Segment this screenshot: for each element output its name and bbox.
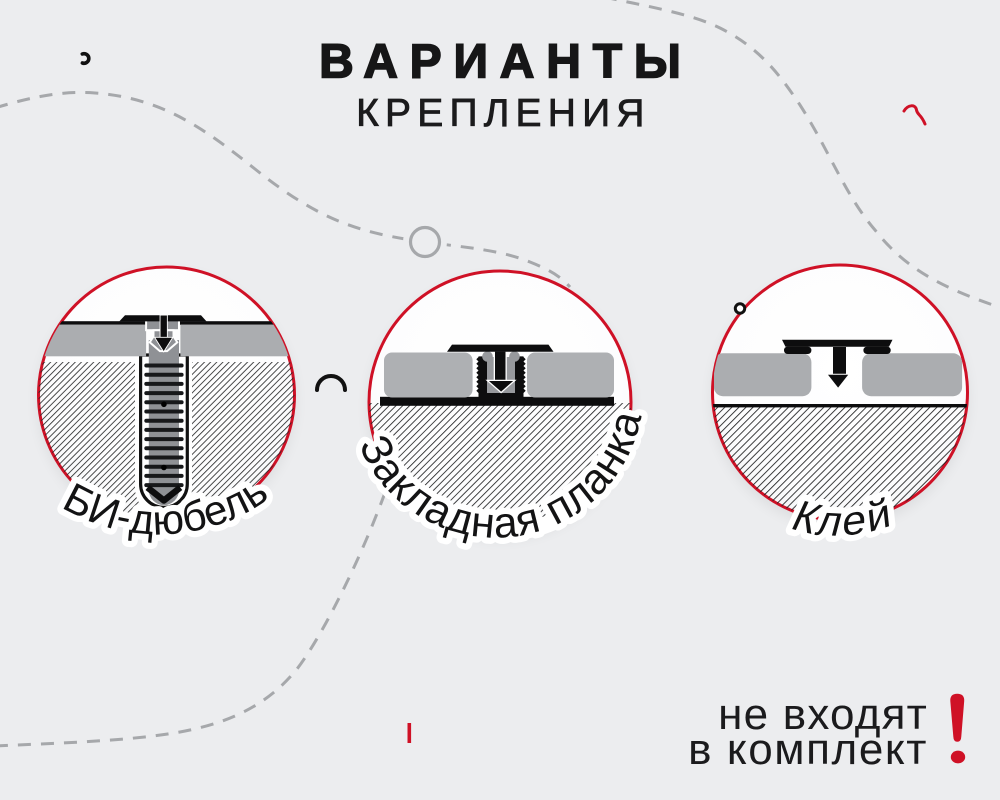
svg-text:КРЕПЛЕНИЯ: КРЕПЛЕНИЯ <box>356 92 651 135</box>
svg-text:в комплект: в комплект <box>688 725 928 774</box>
svg-text:ВАРИАНТЫ: ВАРИАНТЫ <box>319 36 693 89</box>
